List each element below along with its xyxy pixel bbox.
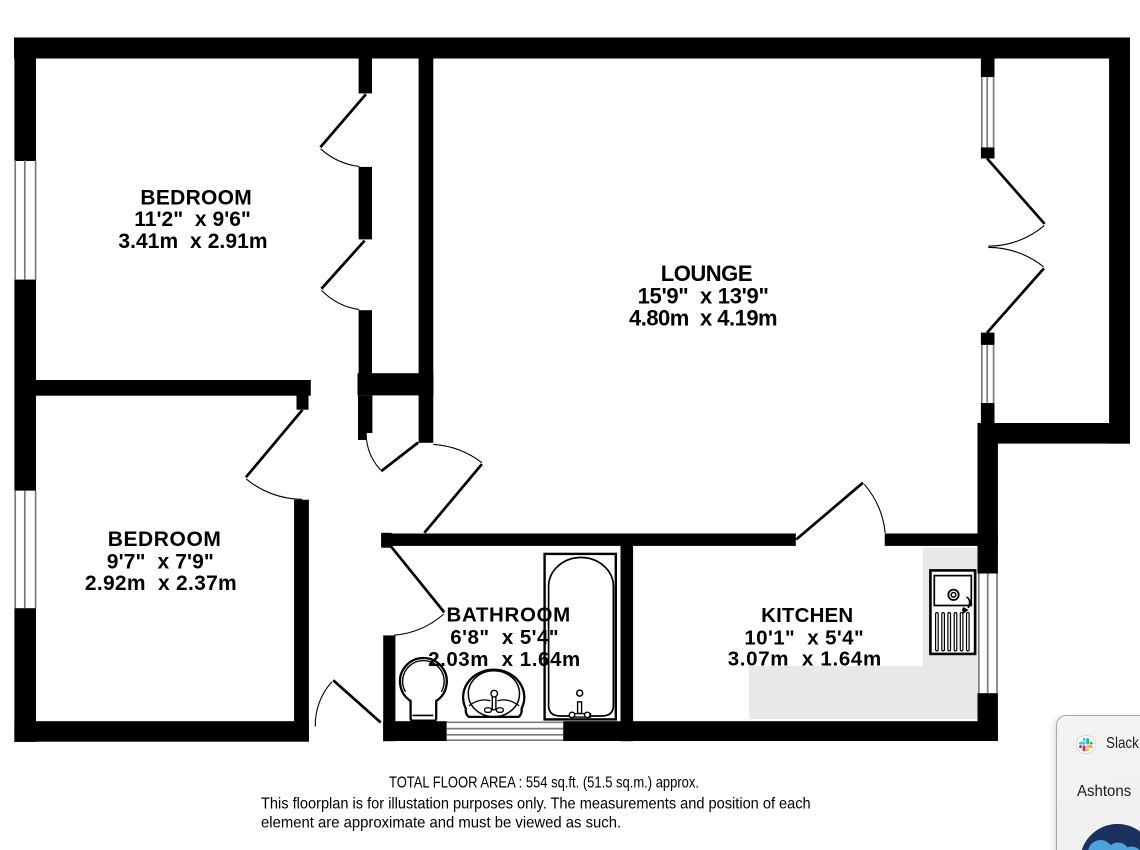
svg-text:BATHROOM: BATHROOM [447,604,571,627]
svg-text:2.92m x 2.37m: 2.92m x 2.37m [85,572,237,595]
svg-text:KITCHEN: KITCHEN [761,604,853,627]
svg-text:This floorplan is for illustat: This floorplan is for illustation purpos… [261,795,811,813]
svg-text:BEDROOM: BEDROOM [140,186,251,209]
svg-text:4.80m x 4.19m: 4.80m x 4.19m [629,305,778,330]
svg-text:TOTAL FLOOR AREA : 554 sq.ft.: TOTAL FLOOR AREA : 554 sq.ft. (51.5 sq.m… [389,774,699,792]
svg-text:BEDROOM: BEDROOM [108,528,221,551]
svg-text:3.41m x 2.91m: 3.41m x 2.91m [118,230,267,253]
svg-text:3.07m x 1.64m: 3.07m x 1.64m [728,648,882,671]
svg-text:10'1" x 5'4": 10'1" x 5'4" [744,626,863,649]
svg-text:11'2" x 9'6": 11'2" x 9'6" [134,208,251,231]
svg-text:2.03m x 1.64m: 2.03m x 1.64m [428,648,580,671]
svg-text:element are approximate and mu: element are approximate and must be view… [261,814,621,832]
svg-text:9'7" x 7'9": 9'7" x 7'9" [107,550,214,573]
svg-text:LOUNGE: LOUNGE [661,261,753,286]
svg-text:6'8" x 5'4": 6'8" x 5'4" [450,626,558,649]
